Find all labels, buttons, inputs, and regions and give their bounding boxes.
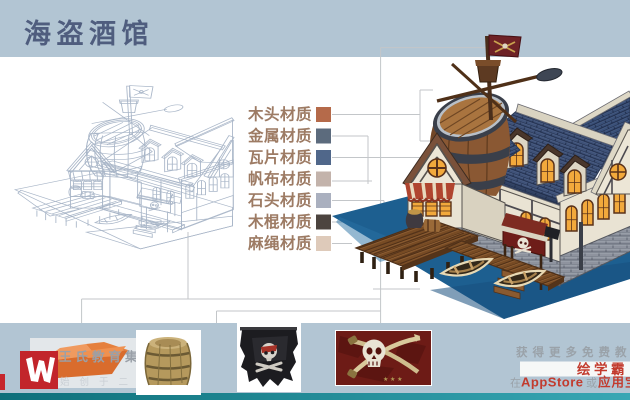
- svg-text:★ ★ ★: ★ ★ ★: [383, 376, 402, 383]
- svg-text:麻绳材质: 麻绳材质: [247, 234, 312, 253]
- svg-text:获得更多免费教程: 获得更多免费教程: [516, 345, 630, 359]
- svg-text:木棍材质: 木棍材质: [247, 212, 312, 231]
- svg-text:或: 或: [586, 377, 597, 390]
- svg-text:在: 在: [510, 377, 521, 390]
- svg-text:木头材质: 木头材质: [247, 105, 312, 124]
- svg-text:金属材质: 金属材质: [247, 126, 312, 145]
- svg-text:石头材质: 石头材质: [247, 191, 312, 210]
- svg-text:海盗酒馆: 海盗酒馆: [24, 18, 154, 49]
- svg-text:AppStore: AppStore: [521, 375, 584, 390]
- svg-text:瓦片材质: 瓦片材质: [248, 148, 312, 167]
- svg-text:始创于二: 始创于二: [60, 376, 138, 388]
- svg-text:应用宝: 应用宝: [598, 375, 630, 390]
- svg-text:帆布材质: 帆布材质: [248, 169, 312, 188]
